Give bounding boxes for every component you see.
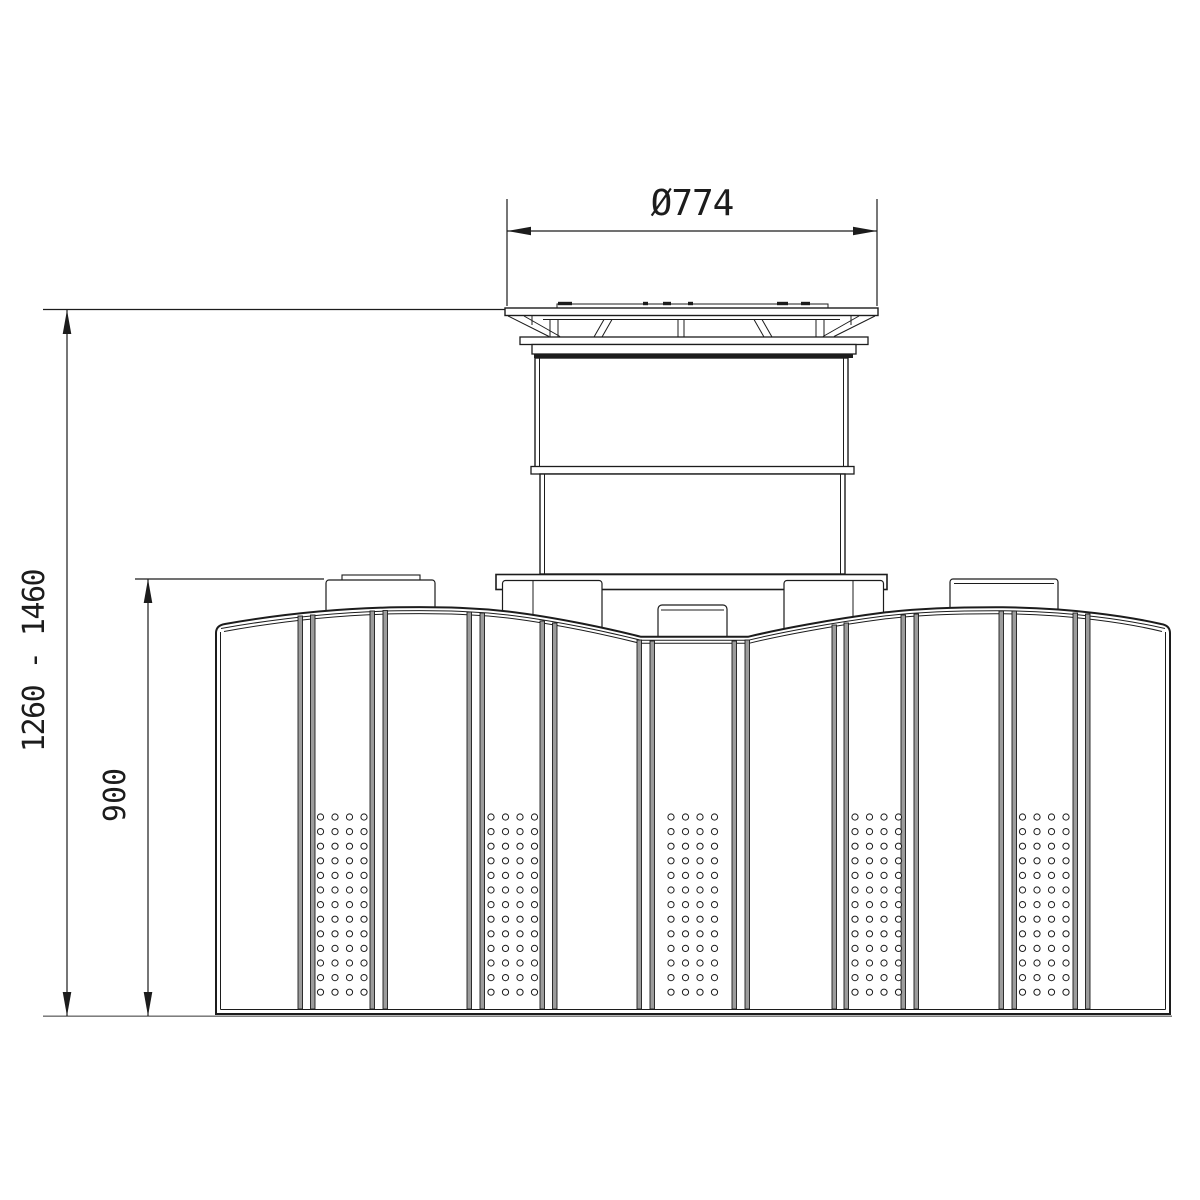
- perforation-hole: [1063, 829, 1069, 835]
- perforation-hole: [711, 843, 717, 849]
- perforation-hole: [361, 887, 367, 893]
- perforation-hole: [531, 887, 537, 893]
- perforation-hole: [697, 814, 703, 820]
- rib-bar: [311, 615, 316, 1009]
- perforation-hole: [531, 916, 537, 922]
- perforation-hole: [711, 931, 717, 937]
- perforation-hole: [1019, 872, 1025, 878]
- perforation-hole: [502, 843, 508, 849]
- rib-bar: [370, 611, 375, 1009]
- perforation-hole: [697, 975, 703, 981]
- perforation-hole: [317, 902, 323, 908]
- perforation-hole: [502, 902, 508, 908]
- perforation-hole: [881, 960, 887, 966]
- perforation-hole: [517, 975, 523, 981]
- perforation-hole: [517, 829, 523, 835]
- perforation-hole: [852, 960, 858, 966]
- perforation-hole: [332, 872, 338, 878]
- arrowhead-up: [144, 579, 153, 603]
- rib-bar: [914, 614, 919, 1009]
- perforation-hole: [361, 843, 367, 849]
- perforation-hole: [531, 945, 537, 951]
- perforation-hole: [517, 814, 523, 820]
- perforation-hole: [866, 872, 872, 878]
- perforation-hole: [711, 902, 717, 908]
- perforation-hole: [881, 872, 887, 878]
- perforation-hole: [488, 975, 494, 981]
- technical-drawing-flat-tank: Ø774 1260 - 1460 900: [0, 0, 1200, 1200]
- perforation-hole: [1063, 902, 1069, 908]
- perforation-hole: [682, 945, 688, 951]
- perforation-hole: [697, 902, 703, 908]
- perforation-hole: [332, 902, 338, 908]
- perforation-hole: [346, 931, 352, 937]
- perforation-hole: [317, 989, 323, 995]
- perforation-hole: [895, 945, 901, 951]
- perforation-hole: [1048, 931, 1054, 937]
- shaft-upper-section: [535, 358, 848, 467]
- rib-bar: [383, 611, 388, 1010]
- perforation-hole: [346, 814, 352, 820]
- perforation-hole: [1048, 975, 1054, 981]
- perforation-hole: [1063, 887, 1069, 893]
- perforation-hole: [697, 829, 703, 835]
- perforation-hole: [881, 945, 887, 951]
- shaft-telescope-flange: [531, 467, 854, 475]
- perforation-hole: [697, 916, 703, 922]
- perforation-hole: [332, 814, 338, 820]
- perforation-hole: [881, 989, 887, 995]
- perforation-hole: [531, 858, 537, 864]
- rib-bar: [832, 625, 837, 1009]
- perforation-hole: [317, 960, 323, 966]
- perforation-hole: [502, 975, 508, 981]
- arrowhead-right: [853, 227, 877, 235]
- perforation-hole: [317, 945, 323, 951]
- tank-body: [216, 607, 1170, 1014]
- perforation-hole: [895, 858, 901, 864]
- perforation-hole: [895, 989, 901, 995]
- perforation-hole: [517, 945, 523, 951]
- perforation-hole: [711, 872, 717, 878]
- perforation-hole: [895, 843, 901, 849]
- rib-bar: [298, 616, 303, 1009]
- perforation-hole: [332, 887, 338, 893]
- perforation-hole: [1019, 829, 1025, 835]
- perforation-hole: [1063, 858, 1069, 864]
- rib-bar: [650, 641, 655, 1009]
- rib-bar: [745, 640, 750, 1009]
- perforation-hole: [332, 829, 338, 835]
- arrowhead-down: [63, 992, 72, 1016]
- rib-bar: [999, 611, 1004, 1009]
- perforation-hole: [488, 989, 494, 995]
- perforation-hole: [1034, 843, 1040, 849]
- perforation-hole: [346, 887, 352, 893]
- perforation-hole: [1019, 887, 1025, 893]
- perforation-hole: [361, 858, 367, 864]
- perforation-hole: [895, 916, 901, 922]
- perforation-hole: [517, 916, 523, 922]
- perforation-hole: [682, 931, 688, 937]
- perforation-hole: [488, 829, 494, 835]
- perforation-hole: [332, 931, 338, 937]
- perforation-hole: [1034, 814, 1040, 820]
- perforation-hole: [881, 902, 887, 908]
- tank-height-label: 900: [98, 768, 133, 822]
- shaft-lid-assembly: [505, 302, 878, 358]
- perforation-hole: [1034, 931, 1040, 937]
- perforation-hole: [881, 931, 887, 937]
- perforation-hole: [531, 843, 537, 849]
- perforation-hole: [668, 916, 674, 922]
- perforation-hole: [682, 975, 688, 981]
- rib-bar: [480, 613, 485, 1009]
- perforation-hole: [1063, 975, 1069, 981]
- perforation-hole: [502, 872, 508, 878]
- perforation-hole: [502, 916, 508, 922]
- perforation-hole: [531, 960, 537, 966]
- perforation-hole: [346, 989, 352, 995]
- perforation-hole: [531, 931, 537, 937]
- perforation-hole: [1019, 814, 1025, 820]
- perforation-hole: [332, 945, 338, 951]
- rib-bar: [732, 641, 737, 1009]
- perforation-hole: [517, 902, 523, 908]
- perforation-hole: [361, 872, 367, 878]
- perforation-hole: [346, 843, 352, 849]
- diameter-label: Ø774: [651, 183, 734, 224]
- perforation-hole: [682, 960, 688, 966]
- perforation-hole: [866, 989, 872, 995]
- perforation-hole: [1019, 960, 1025, 966]
- perforation-hole: [668, 902, 674, 908]
- perforation-hole: [332, 916, 338, 922]
- collar-ring-lower: [532, 345, 856, 355]
- perforation-hole: [895, 814, 901, 820]
- perforation-hole: [517, 858, 523, 864]
- perforation-hole: [1048, 902, 1054, 908]
- collar-ring-upper: [520, 337, 868, 345]
- perforation-hole: [697, 945, 703, 951]
- shaft-lower-section: [540, 474, 845, 574]
- perforation-hole: [1048, 960, 1054, 966]
- perforation-hole: [895, 872, 901, 878]
- perforation-hole: [346, 829, 352, 835]
- perforation-hole: [1034, 887, 1040, 893]
- perforation-hole: [1048, 843, 1054, 849]
- perforation-hole: [881, 858, 887, 864]
- perforation-hole: [317, 814, 323, 820]
- perforation-hole: [332, 960, 338, 966]
- lid-plate: [505, 308, 878, 316]
- perforation-hole: [531, 902, 537, 908]
- perforation-hole: [1048, 989, 1054, 995]
- perforation-hole: [1048, 872, 1054, 878]
- perforation-hole: [881, 887, 887, 893]
- perforation-hole: [697, 887, 703, 893]
- perforation-hole: [502, 814, 508, 820]
- perforation-hole: [866, 814, 872, 820]
- perforation-hole: [682, 989, 688, 995]
- perforation-hole: [517, 989, 523, 995]
- perforation-hole: [346, 858, 352, 864]
- perforation-hole: [361, 989, 367, 995]
- perforation-hole: [697, 960, 703, 966]
- perforation-hole: [668, 843, 674, 849]
- overall-height-label: 1260 - 1460: [17, 569, 52, 752]
- perforation-hole: [361, 975, 367, 981]
- perforation-hole: [866, 960, 872, 966]
- perforation-hole: [697, 843, 703, 849]
- perforation-hole: [346, 902, 352, 908]
- perforation-hole: [668, 931, 674, 937]
- arrowhead-left: [507, 227, 531, 235]
- perforation-hole: [1034, 975, 1040, 981]
- perforation-hole: [852, 975, 858, 981]
- perforation-hole: [881, 975, 887, 981]
- perforation-hole: [1019, 945, 1025, 951]
- perforation-hole: [852, 872, 858, 878]
- perforation-hole: [1063, 843, 1069, 849]
- perforation-hole: [1034, 858, 1040, 864]
- perforation-hole: [488, 887, 494, 893]
- perforation-hole: [895, 887, 901, 893]
- perforation-hole: [502, 989, 508, 995]
- perforation-hole: [502, 829, 508, 835]
- perforation-hole: [317, 858, 323, 864]
- perforation-hole: [895, 975, 901, 981]
- perforation-hole: [1063, 989, 1069, 995]
- perforation-hole: [1063, 931, 1069, 937]
- perforation-hole: [866, 902, 872, 908]
- perforation-hole: [317, 975, 323, 981]
- perforation-hole: [346, 916, 352, 922]
- perforation-hole: [852, 843, 858, 849]
- perforation-hole: [668, 960, 674, 966]
- perforation-hole: [711, 945, 717, 951]
- perforation-hole: [1034, 989, 1040, 995]
- perforation-hole: [1034, 960, 1040, 966]
- perforation-hole: [682, 814, 688, 820]
- perforation-hole: [881, 916, 887, 922]
- perforation-hole: [488, 960, 494, 966]
- perforation-hole: [1019, 989, 1025, 995]
- perforation-hole: [697, 989, 703, 995]
- perforation-hole: [895, 960, 901, 966]
- perforation-hole: [697, 931, 703, 937]
- perforation-hole: [852, 931, 858, 937]
- perforation-hole: [852, 989, 858, 995]
- telescopic-shaft: [531, 358, 854, 574]
- rib-bar: [637, 640, 642, 1009]
- perforation-hole: [1019, 931, 1025, 937]
- perforation-hole: [488, 843, 494, 849]
- perforation-hole: [668, 989, 674, 995]
- perforation-hole: [881, 843, 887, 849]
- perforation-hole: [346, 872, 352, 878]
- perforation-hole: [881, 829, 887, 835]
- perforation-hole: [332, 989, 338, 995]
- perforation-hole: [668, 814, 674, 820]
- perforation-hole: [1048, 814, 1054, 820]
- rib-bar: [1073, 613, 1078, 1009]
- perforation-hole: [361, 945, 367, 951]
- rib-bar: [1012, 611, 1017, 1009]
- rib-bar: [1086, 614, 1091, 1009]
- perforation-hole: [711, 858, 717, 864]
- perforation-hole: [332, 843, 338, 849]
- perforation-hole: [711, 814, 717, 820]
- perforation-hole: [852, 858, 858, 864]
- perforation-hole: [668, 945, 674, 951]
- perforation-hole: [866, 975, 872, 981]
- perforation-hole: [895, 829, 901, 835]
- perforation-hole: [1034, 872, 1040, 878]
- rib-bar: [467, 612, 472, 1009]
- perforation-hole: [881, 814, 887, 820]
- perforation-hole: [488, 902, 494, 908]
- perforation-hole: [682, 902, 688, 908]
- perforation-hole: [502, 960, 508, 966]
- perforation-hole: [711, 887, 717, 893]
- perforation-hole: [531, 989, 537, 995]
- perforation-hole: [1063, 960, 1069, 966]
- perforation-hole: [517, 872, 523, 878]
- perforation-hole: [488, 872, 494, 878]
- perforation-hole: [1063, 814, 1069, 820]
- perforation-hole: [852, 945, 858, 951]
- perforation-hole: [531, 872, 537, 878]
- perforation-hole: [317, 843, 323, 849]
- perforation-hole: [668, 858, 674, 864]
- rib-bar: [540, 621, 545, 1009]
- perforation-hole: [682, 843, 688, 849]
- perforation-hole: [502, 858, 508, 864]
- perforation-hole: [711, 829, 717, 835]
- perforation-hole: [317, 916, 323, 922]
- perforation-hole: [866, 843, 872, 849]
- perforation-hole: [317, 931, 323, 937]
- perforation-hole: [1019, 916, 1025, 922]
- arrowhead-down: [144, 992, 153, 1016]
- perforation-hole: [682, 858, 688, 864]
- perforation-hole: [488, 916, 494, 922]
- perforation-hole: [852, 829, 858, 835]
- perforation-hole: [488, 945, 494, 951]
- perforation-hole: [517, 887, 523, 893]
- perforation-hole: [361, 829, 367, 835]
- perforation-hole: [488, 814, 494, 820]
- perforation-hole: [668, 975, 674, 981]
- lid-support-fins: [508, 316, 875, 337]
- perforation-hole: [488, 858, 494, 864]
- perforation-hole: [1034, 916, 1040, 922]
- perforation-hole: [1048, 858, 1054, 864]
- perforation-hole: [866, 945, 872, 951]
- perforation-hole: [1019, 975, 1025, 981]
- perforation-hole: [361, 960, 367, 966]
- perforation-hole: [502, 887, 508, 893]
- perforation-hole: [517, 843, 523, 849]
- perforation-hole: [531, 829, 537, 835]
- perforation-hole: [517, 960, 523, 966]
- rib-bar: [553, 623, 558, 1009]
- perforation-hole: [488, 931, 494, 937]
- perforation-hole: [361, 814, 367, 820]
- perforation-hole: [1019, 858, 1025, 864]
- perforation-hole: [531, 975, 537, 981]
- perforation-hole: [697, 872, 703, 878]
- perforation-hole: [332, 858, 338, 864]
- perforation-hole: [1034, 945, 1040, 951]
- perforation-hole: [317, 829, 323, 835]
- perforation-hole: [866, 858, 872, 864]
- perforation-hole: [531, 814, 537, 820]
- perforation-hole: [1063, 872, 1069, 878]
- perforation-hole: [697, 858, 703, 864]
- perforation-hole: [346, 945, 352, 951]
- perforation-hole: [682, 887, 688, 893]
- perforation-hole: [1048, 945, 1054, 951]
- perforation-hole: [502, 945, 508, 951]
- perforation-hole: [668, 887, 674, 893]
- perforation-hole: [852, 916, 858, 922]
- perforation-hole: [1048, 887, 1054, 893]
- perforation-hole: [682, 916, 688, 922]
- rib-bar: [844, 623, 849, 1009]
- arrowhead-up: [63, 310, 72, 334]
- perforation-hole: [1063, 945, 1069, 951]
- perforation-hole: [517, 931, 523, 937]
- perforation-hole: [682, 872, 688, 878]
- perforation-hole: [1034, 829, 1040, 835]
- perforation-hole: [1063, 916, 1069, 922]
- perforation-hole: [711, 989, 717, 995]
- perforation-hole: [668, 872, 674, 878]
- perforation-hole: [711, 975, 717, 981]
- perforation-hole: [895, 902, 901, 908]
- perforation-hole: [895, 931, 901, 937]
- perforation-hole: [502, 931, 508, 937]
- perforation-hole: [711, 960, 717, 966]
- perforation-hole: [361, 916, 367, 922]
- perforation-hole: [866, 887, 872, 893]
- perforation-hole: [1019, 902, 1025, 908]
- perforation-hole: [711, 916, 717, 922]
- perforation-hole: [682, 829, 688, 835]
- perforation-hole: [332, 975, 338, 981]
- perforation-hole: [1048, 916, 1054, 922]
- perforation-hole: [852, 902, 858, 908]
- perforation-hole: [866, 916, 872, 922]
- perforation-hole: [1019, 843, 1025, 849]
- perforation-hole: [866, 829, 872, 835]
- perforation-hole: [668, 829, 674, 835]
- perforation-hole: [852, 814, 858, 820]
- perforation-hole: [852, 887, 858, 893]
- perforation-hole: [346, 975, 352, 981]
- perforation-hole: [317, 887, 323, 893]
- perforation-hole: [866, 931, 872, 937]
- perforation-hole: [361, 902, 367, 908]
- perforation-hole: [361, 931, 367, 937]
- perforation-hole: [346, 960, 352, 966]
- perforation-hole: [1034, 902, 1040, 908]
- perforation-hole: [1048, 829, 1054, 835]
- dimension-diameter-774: Ø774: [507, 183, 877, 306]
- perforation-hole: [317, 872, 323, 878]
